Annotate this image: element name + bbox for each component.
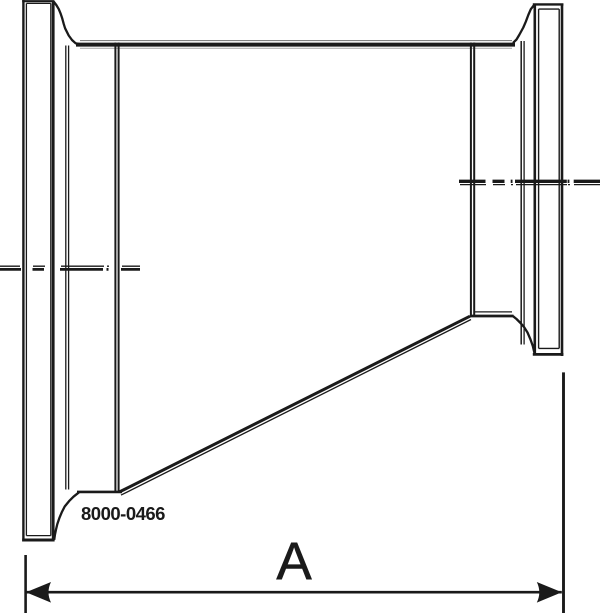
svg-text:A: A <box>276 532 312 591</box>
svg-text:8000-0466: 8000-0466 <box>81 503 165 524</box>
